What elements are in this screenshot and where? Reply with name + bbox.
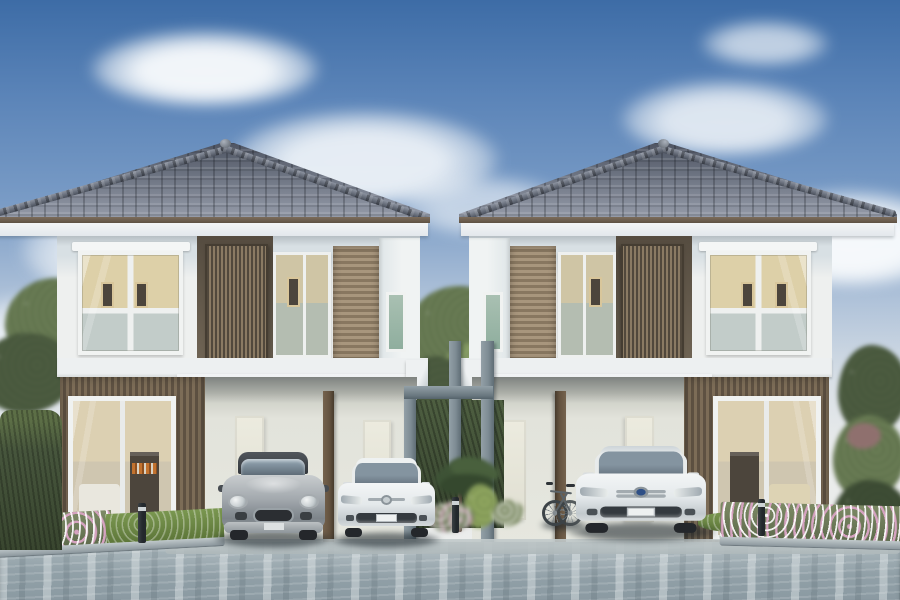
framed-picture xyxy=(287,277,299,307)
car-emblem xyxy=(634,487,649,498)
framed-picture xyxy=(589,277,601,307)
roller-shade-box xyxy=(699,242,817,251)
car-foglight xyxy=(685,509,696,516)
car-hood xyxy=(245,477,302,494)
cloud xyxy=(90,30,320,105)
car-vent xyxy=(235,512,247,520)
car-foglight xyxy=(346,515,354,521)
car-wheel xyxy=(345,528,362,537)
car-vent xyxy=(300,512,312,520)
car-headlight xyxy=(299,494,319,509)
framed-picture xyxy=(135,282,148,308)
upper-sliding-window xyxy=(558,252,616,358)
bollard-light xyxy=(452,497,459,533)
upper-floor-wall xyxy=(469,236,832,362)
roof-finial xyxy=(658,139,669,148)
interior-books xyxy=(132,463,157,473)
pergola-beam xyxy=(404,386,493,399)
roof-soffit xyxy=(461,223,894,236)
license-plate xyxy=(627,508,655,517)
license-plate xyxy=(376,514,397,522)
roof-finial xyxy=(220,139,231,148)
framed-picture xyxy=(101,282,114,308)
car-headlight xyxy=(228,494,248,509)
pergola-centre-post xyxy=(449,341,461,473)
vertical-louvre-screen xyxy=(205,244,268,362)
vertical-louvre-screen xyxy=(621,244,684,362)
roof-soffit xyxy=(0,223,428,236)
upper-sliding-window xyxy=(273,252,331,358)
car-windshield xyxy=(352,463,421,485)
bicycle-seat xyxy=(566,484,575,487)
silver-hatchback xyxy=(222,452,325,540)
framed-picture xyxy=(741,282,754,308)
flower-bed-right xyxy=(719,502,900,551)
car-foglight xyxy=(419,515,427,521)
horizontal-slat-cladding xyxy=(510,246,556,360)
car-wheel xyxy=(411,528,428,537)
car-grille xyxy=(253,508,294,523)
horizontal-slat-cladding xyxy=(333,246,379,360)
white-sedan-large xyxy=(576,446,706,534)
car-wheel xyxy=(674,523,697,533)
white-sedan-small xyxy=(338,458,435,538)
car-wheel xyxy=(299,530,317,540)
upper-picture-window xyxy=(78,251,183,355)
car-headlight xyxy=(341,495,362,505)
upper-picture-window xyxy=(706,251,811,355)
bollard-light xyxy=(138,503,146,543)
bicycle-handlebar xyxy=(546,482,553,485)
narrow-side-window xyxy=(386,292,406,352)
upper-floor-wall xyxy=(57,236,420,362)
car-wheel xyxy=(585,523,608,533)
car-foglight xyxy=(587,509,598,516)
cloud xyxy=(700,20,830,65)
canopy-shadow xyxy=(205,377,417,403)
license-plate xyxy=(264,523,284,530)
hedge-left xyxy=(0,410,62,550)
car-emblem xyxy=(381,495,392,505)
car-windshield xyxy=(241,459,305,476)
car-windshield xyxy=(595,452,687,476)
upper-side-wall xyxy=(379,238,420,362)
roller-shade-box xyxy=(72,242,190,251)
architectural-rendering: architectural-exterior-rendering xyxy=(0,0,900,600)
framed-picture xyxy=(775,282,788,308)
car-wheel xyxy=(230,530,248,540)
bollard-light xyxy=(758,499,765,536)
